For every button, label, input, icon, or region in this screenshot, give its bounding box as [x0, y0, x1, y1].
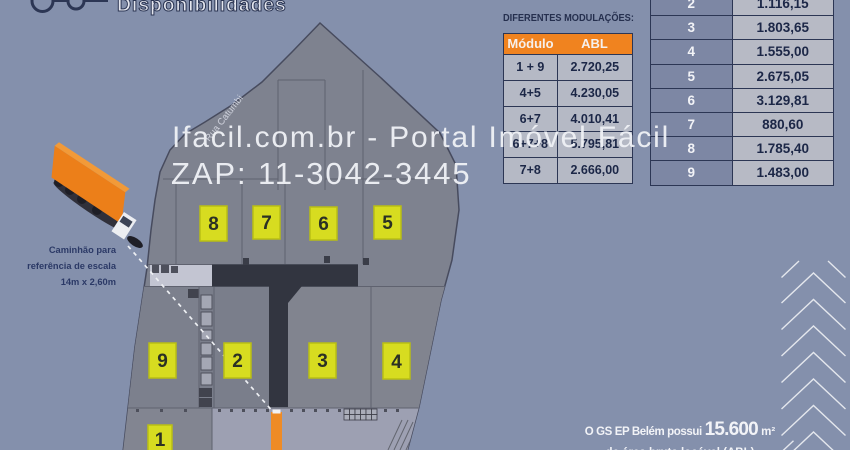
svg-text:7: 7: [261, 213, 272, 234]
svg-text:4: 4: [391, 352, 402, 373]
svg-text:8: 8: [208, 214, 219, 235]
svg-text:6: 6: [318, 214, 329, 235]
svg-text:2: 2: [232, 351, 243, 372]
svg-text:3: 3: [317, 351, 328, 372]
svg-text:5: 5: [382, 213, 393, 234]
svg-text:9: 9: [157, 351, 168, 372]
svg-text:1: 1: [155, 430, 166, 450]
